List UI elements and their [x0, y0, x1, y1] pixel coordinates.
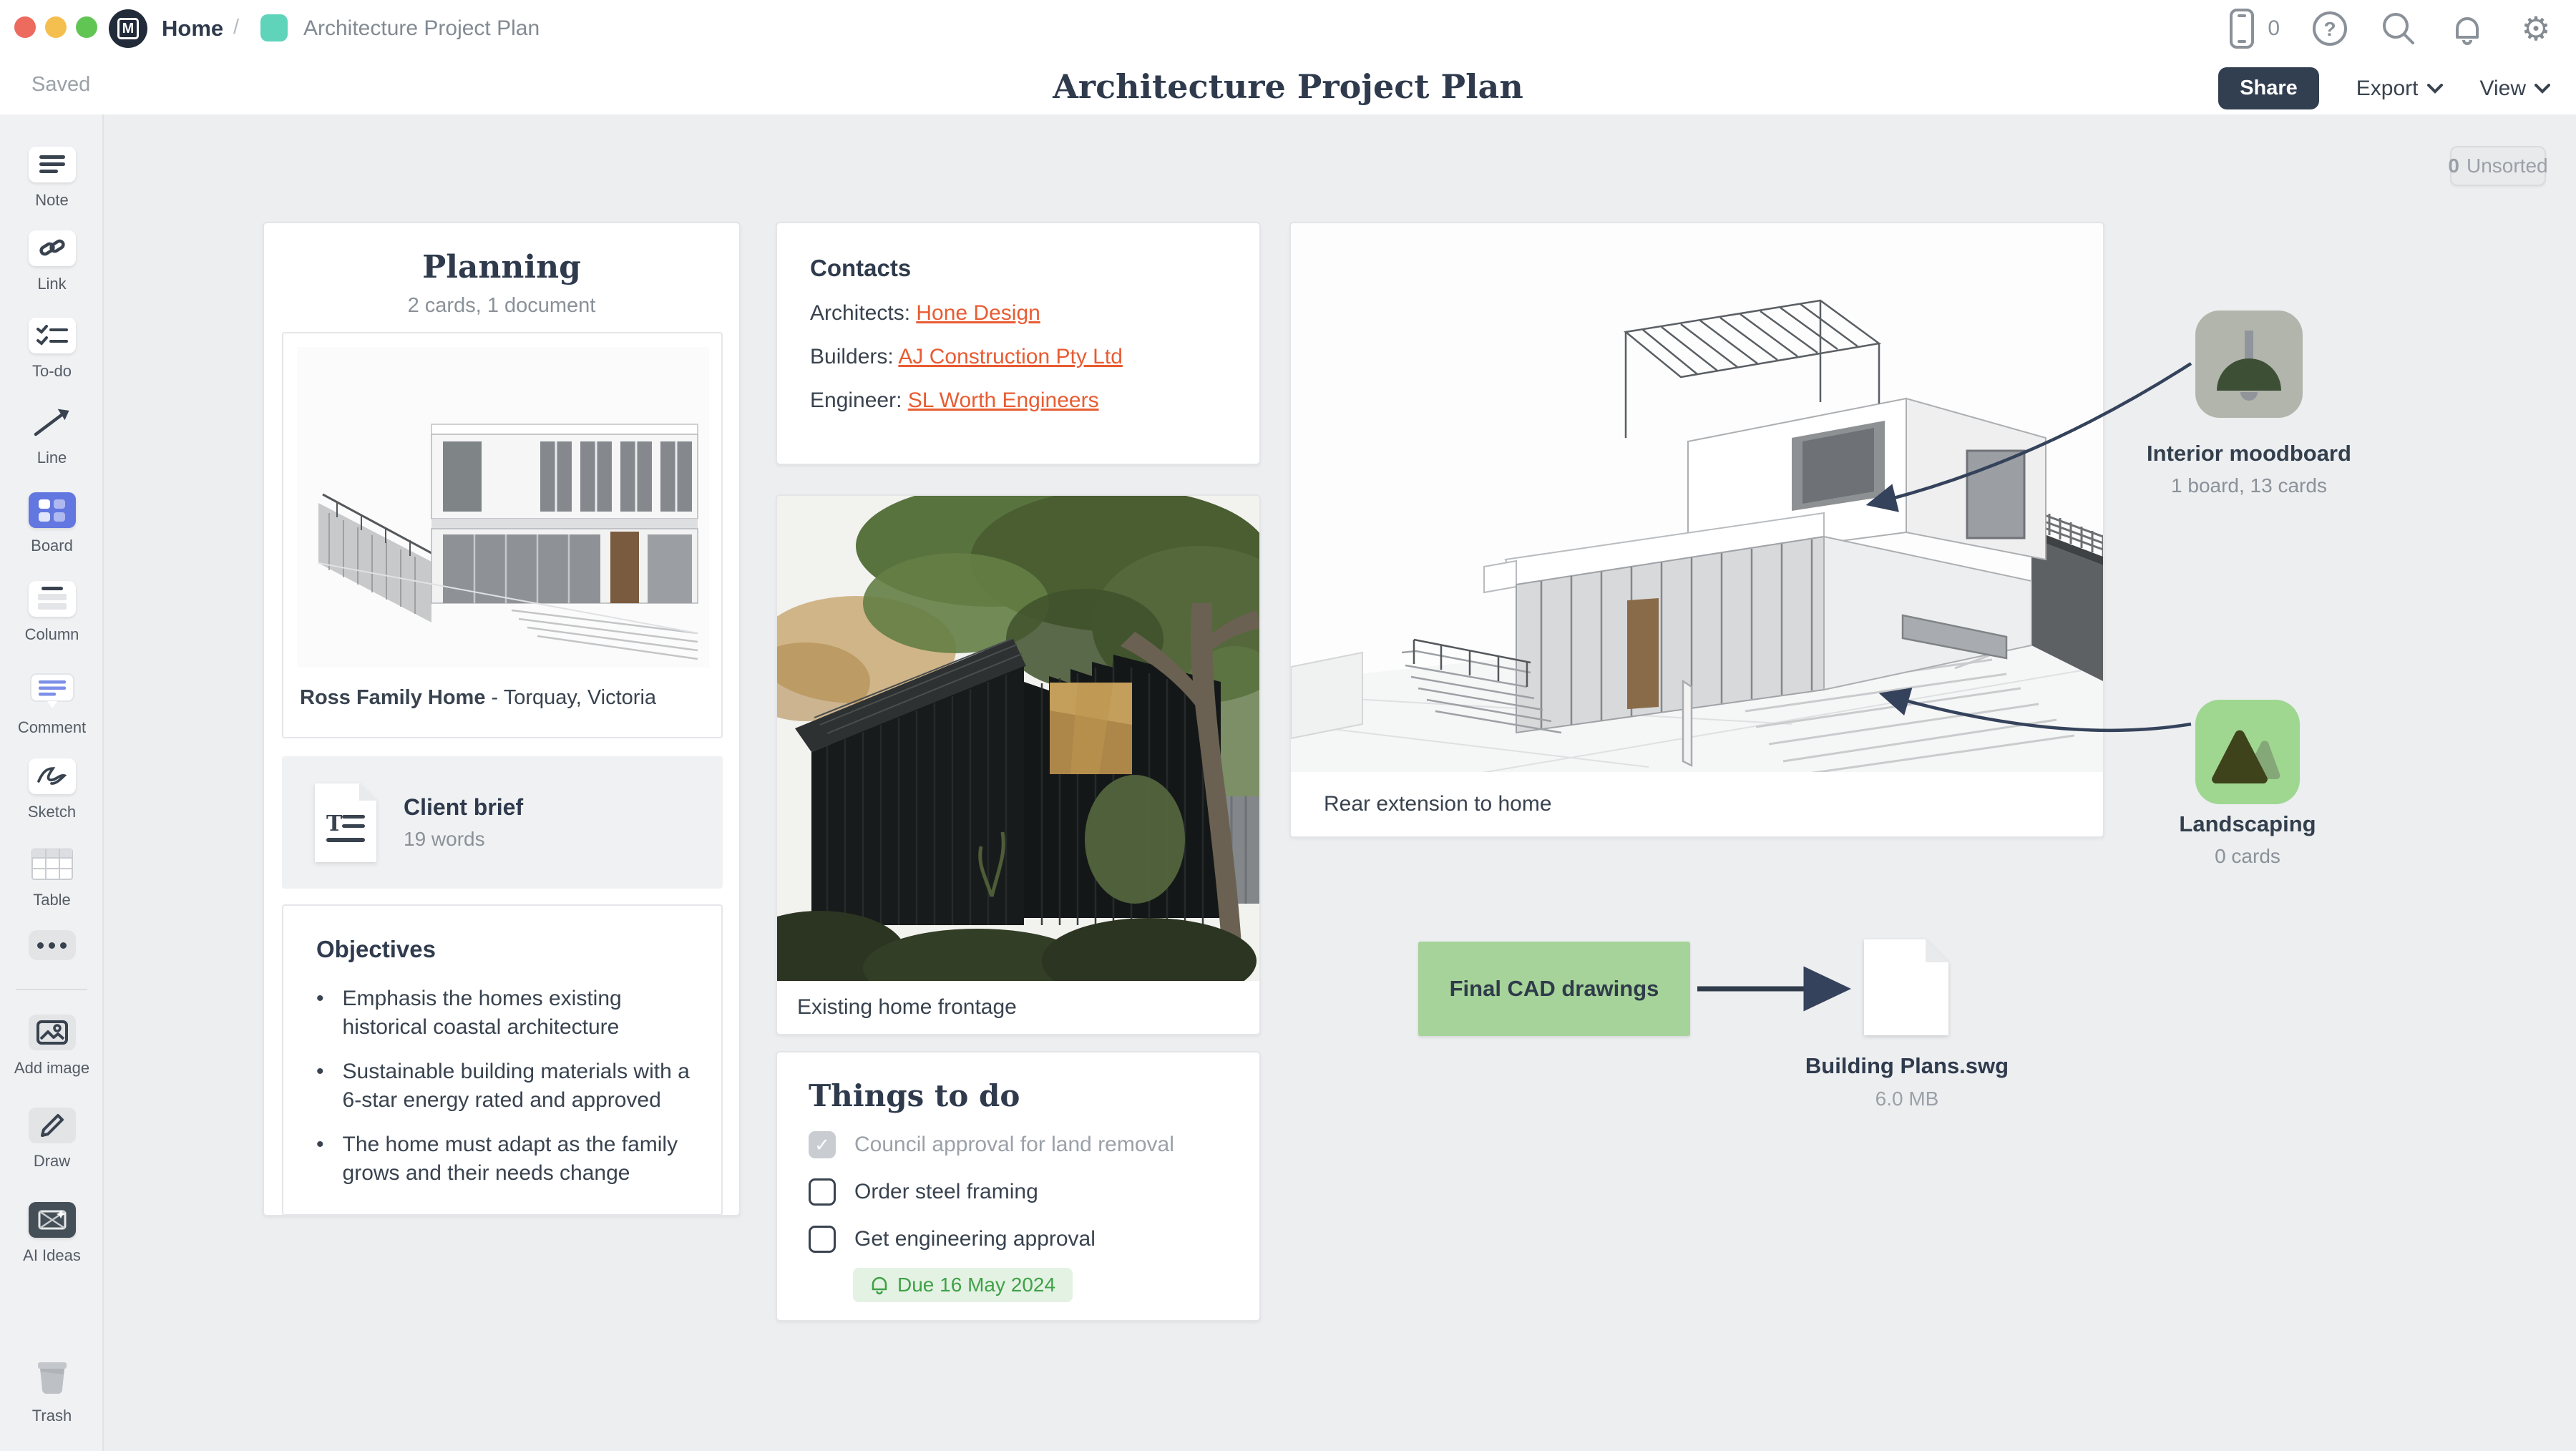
draw-pencil-icon [29, 1108, 76, 1143]
file-size: 6.0 MB [1775, 1088, 2039, 1110]
note-title: Contacts [810, 255, 1259, 282]
link-icon [29, 230, 76, 266]
sidebar-item-line[interactable]: Line [0, 404, 104, 467]
export-menu-button[interactable]: Export [2356, 77, 2443, 101]
contact-row: Engineer: SL Worth Engineers [810, 389, 1259, 413]
checkbox-unchecked[interactable] [809, 1178, 836, 1206]
landscaping-board[interactable] [2195, 700, 2300, 804]
mobile-uploads-count: 0 [2268, 16, 2280, 41]
sidebar-divider [16, 989, 87, 990]
svg-text:?: ? [2323, 18, 2336, 40]
sidebar-item-ai-ideas[interactable]: AI Ideas [0, 1202, 104, 1265]
column-title: Planning [264, 249, 739, 285]
image-caption: Ross Family Home - Torquay, Victoria [300, 686, 708, 710]
board-meta: 1 board, 13 cards [2127, 474, 2371, 497]
todo-card[interactable]: Things to do ✓ Council approval for land… [776, 1051, 1261, 1321]
sidebar-item-table[interactable]: Table [0, 846, 104, 909]
line-arrow-icon [29, 404, 76, 440]
view-menu-button[interactable]: View [2480, 77, 2550, 101]
house-render-image-card[interactable]: Ross Family Home - Torquay, Victoria [282, 332, 723, 738]
phone-icon [2223, 10, 2260, 47]
contact-row: Architects: Hone Design [810, 301, 1259, 326]
house-render-image [297, 347, 709, 668]
sidebar-item-sketch[interactable]: Sketch [0, 758, 104, 821]
sidebar-more-button[interactable] [0, 930, 104, 960]
contact-link[interactable]: AJ Construction Pty Ltd [898, 345, 1122, 368]
sidebar-item-draw[interactable]: Draw [0, 1108, 104, 1171]
board-header: Saved Architecture Project Plan Share Ex… [0, 57, 2576, 114]
board-icon [29, 492, 76, 528]
board-color-chip [260, 14, 288, 41]
todo-icon [29, 318, 76, 353]
sidebar-item-todo[interactable]: To-do [0, 318, 104, 381]
more-dots-icon [29, 930, 76, 960]
help-icon[interactable]: ? [2311, 10, 2348, 47]
sidebar-item-link[interactable]: Link [0, 230, 104, 293]
frontage-photo [777, 496, 1261, 983]
search-icon[interactable] [2380, 10, 2417, 47]
contacts-note-card[interactable]: Contacts Architects: Hone Design Builder… [776, 222, 1261, 465]
save-status: Saved [31, 73, 90, 97]
table-icon [29, 846, 76, 882]
sidebar-item-note[interactable]: Note [0, 147, 104, 210]
sidebar-item-trash[interactable]: Trash [0, 1358, 104, 1425]
sidebar-item-board[interactable]: Board [0, 492, 104, 555]
document-meta: 19 words [404, 828, 523, 851]
breadcrumb-separator: / [233, 16, 239, 39]
page-title: Architecture Project Plan [0, 67, 2576, 106]
board-canvas[interactable]: Note Link To-do Line [0, 114, 2576, 1451]
sidebar-item-add-image[interactable]: Add image [0, 1015, 104, 1078]
unsorted-tray-badge[interactable]: 0 Unsorted [2450, 146, 2546, 186]
reminder-bell-icon [870, 1275, 889, 1295]
sketch-icon [29, 758, 76, 794]
contact-link[interactable]: Hone Design [916, 301, 1040, 325]
note-title: Objectives [316, 936, 693, 963]
trash-icon [29, 1358, 76, 1398]
add-image-icon [29, 1015, 76, 1050]
sidebar-item-comment[interactable]: Comment [0, 674, 104, 737]
image-caption: Existing home frontage [777, 981, 1259, 1034]
share-button[interactable]: Share [2218, 67, 2319, 109]
board-title[interactable]: Interior moodboard [2127, 441, 2371, 466]
breadcrumb-current-board[interactable]: Architecture Project Plan [303, 16, 540, 41]
file-name: Building Plans.swg [1775, 1053, 2039, 1079]
document-icon: T [315, 783, 376, 862]
board-meta: 0 cards [2126, 845, 2369, 868]
contact-row: Builders: AJ Construction Pty Ltd [810, 345, 1259, 369]
document-title: Client brief [404, 794, 523, 821]
chevron-down-icon [2427, 84, 2443, 94]
objective-bullet-item: •The home must adapt as the family grows… [316, 1130, 693, 1188]
client-brief-document-card[interactable]: T Client brief 19 words [282, 756, 723, 889]
traffic-lights[interactable] [14, 16, 97, 38]
todo-item: Get engineering approval [809, 1223, 1259, 1255]
frontage-image-card[interactable]: Existing home frontage [776, 494, 1261, 1035]
board-title[interactable]: Landscaping [2126, 811, 2369, 837]
todo-title: Things to do [809, 1078, 1259, 1113]
minimize-window-button[interactable] [45, 16, 67, 38]
checkbox-checked[interactable]: ✓ [809, 1131, 836, 1158]
contact-link[interactable]: SL Worth Engineers [908, 389, 1099, 412]
comment-icon [29, 674, 76, 710]
sidebar-item-column[interactable]: Column [0, 581, 104, 644]
milanote-logo[interactable]: M [109, 9, 147, 48]
pendant-lamp-icon [2213, 325, 2285, 404]
due-date-badge[interactable]: Due 16 May 2024 [853, 1268, 1073, 1302]
interior-moodboard-board[interactable] [2195, 311, 2303, 418]
objective-bullet-item: •Emphasis the homes existing historical … [316, 985, 693, 1042]
settings-gear-icon[interactable]: ⚙ [2517, 10, 2555, 47]
note-icon [29, 147, 76, 182]
column-meta: 2 cards, 1 document [264, 294, 739, 318]
close-window-button[interactable] [14, 16, 36, 38]
final-cad-note-card[interactable]: Final CAD drawings [1418, 942, 1690, 1036]
notifications-bell-icon[interactable] [2449, 10, 2486, 47]
objective-bullet-item: •Sustainable building materials with a 6… [316, 1057, 693, 1115]
image-caption: Rear extension to home [1291, 772, 2103, 836]
rear-extension-render [1291, 223, 2103, 775]
planning-column[interactable]: Planning 2 cards, 1 document [263, 222, 741, 1216]
toolbox-sidebar: Note Link To-do Line [0, 114, 104, 1451]
checkbox-unchecked[interactable] [809, 1226, 836, 1253]
column-icon [29, 581, 76, 617]
file-card[interactable] [1864, 939, 1948, 1035]
svg-text:T: T [326, 811, 343, 836]
objectives-note-card[interactable]: Objectives •Emphasis the homes existing … [282, 904, 723, 1216]
todo-item: ✓ Council approval for land removal [809, 1129, 1259, 1161]
window-titlebar: M Home / Architecture Project Plan 0 ? ⚙ [0, 0, 2576, 57]
rear-extension-image-card[interactable]: Rear extension to home [1289, 222, 2104, 838]
todo-item: Order steel framing [809, 1176, 1259, 1208]
mountains-icon [2208, 720, 2287, 784]
breadcrumb-home[interactable]: Home [162, 16, 223, 41]
app-window: M Home / Architecture Project Plan 0 ? ⚙ [0, 0, 2576, 1451]
ai-ideas-icon [29, 1202, 76, 1238]
mobile-uploads-button[interactable]: 0 [2223, 10, 2280, 47]
zoom-window-button[interactable] [76, 16, 97, 38]
chevron-down-icon [2534, 84, 2550, 94]
